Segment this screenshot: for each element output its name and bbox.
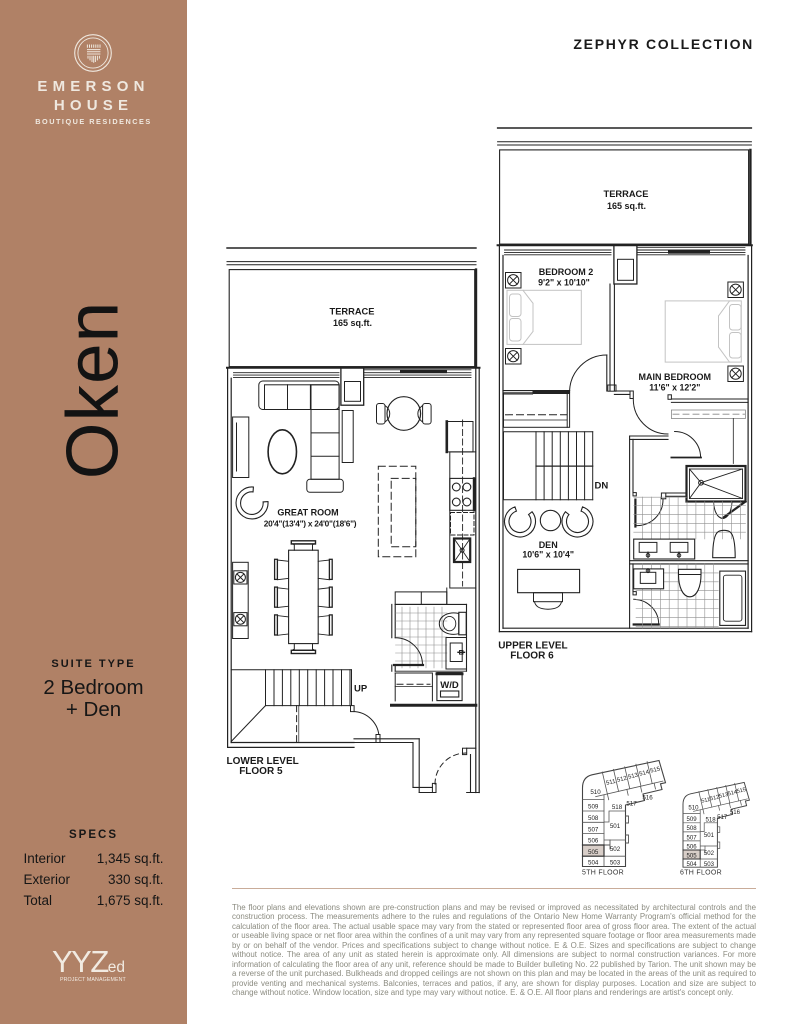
svg-text:5TH FLOOR: 5TH FLOOR [582, 870, 624, 877]
svg-text:DN: DN [595, 481, 609, 492]
svg-text:509: 509 [686, 816, 697, 823]
svg-text:516: 516 [642, 795, 653, 802]
svg-text:BEDROOM 2: BEDROOM 2 [539, 267, 594, 277]
svg-text:507: 507 [686, 834, 697, 841]
svg-text:W/D: W/D [440, 680, 459, 691]
svg-text:510: 510 [688, 805, 699, 812]
svg-text:517: 517 [717, 814, 728, 821]
svg-text:503: 503 [610, 860, 621, 867]
svg-text:TERRACE: TERRACE [604, 189, 649, 199]
svg-text:165 sq.ft.: 165 sq.ft. [607, 201, 646, 211]
svg-text:505: 505 [588, 849, 599, 856]
svg-text:513: 513 [628, 772, 640, 780]
svg-text:516: 516 [730, 809, 741, 816]
svg-text:506: 506 [686, 843, 697, 850]
svg-text:UP: UP [354, 684, 368, 695]
svg-text:511: 511 [606, 779, 617, 787]
svg-text:503: 503 [704, 861, 715, 868]
svg-text:11'6" x 12'2": 11'6" x 12'2" [649, 382, 700, 392]
svg-text:506: 506 [588, 838, 599, 845]
svg-text:GREAT ROOM: GREAT ROOM [277, 508, 338, 518]
svg-text:502: 502 [704, 850, 715, 857]
svg-text:505: 505 [686, 852, 697, 859]
svg-text:10'6" x 10'4": 10'6" x 10'4" [522, 550, 574, 560]
svg-text:512: 512 [617, 776, 629, 784]
svg-text:9'2" x 10'10": 9'2" x 10'10" [538, 277, 590, 287]
svg-text:517: 517 [626, 801, 637, 808]
svg-text:165 sq.ft.: 165 sq.ft. [333, 318, 372, 328]
svg-text:MAIN BEDROOM: MAIN BEDROOM [639, 372, 712, 382]
svg-text:501: 501 [704, 832, 715, 839]
svg-text:20'4"(13'4") x 24'0"(18'6"): 20'4"(13'4") x 24'0"(18'6") [264, 518, 357, 528]
svg-text:504: 504 [686, 861, 697, 868]
svg-text:TERRACE: TERRACE [330, 307, 375, 317]
svg-text:501: 501 [610, 823, 621, 830]
svg-text:518: 518 [612, 804, 623, 811]
svg-text:6TH FLOOR: 6TH FLOOR [680, 870, 722, 877]
svg-text:514: 514 [639, 769, 651, 777]
svg-text:504: 504 [588, 860, 599, 867]
svg-text:508: 508 [686, 825, 697, 832]
svg-text:FLOOR 5: FLOOR 5 [239, 766, 283, 777]
svg-text:507: 507 [588, 826, 599, 833]
svg-text:515: 515 [736, 787, 746, 795]
svg-text:508: 508 [588, 815, 599, 822]
svg-text:515: 515 [650, 766, 662, 774]
svg-text:509: 509 [588, 804, 599, 811]
svg-text:502: 502 [610, 846, 621, 853]
svg-text:FLOOR 6: FLOOR 6 [510, 650, 554, 661]
svg-text:DEN: DEN [539, 540, 558, 550]
svg-text:518: 518 [706, 817, 717, 824]
svg-text:510: 510 [590, 789, 601, 796]
